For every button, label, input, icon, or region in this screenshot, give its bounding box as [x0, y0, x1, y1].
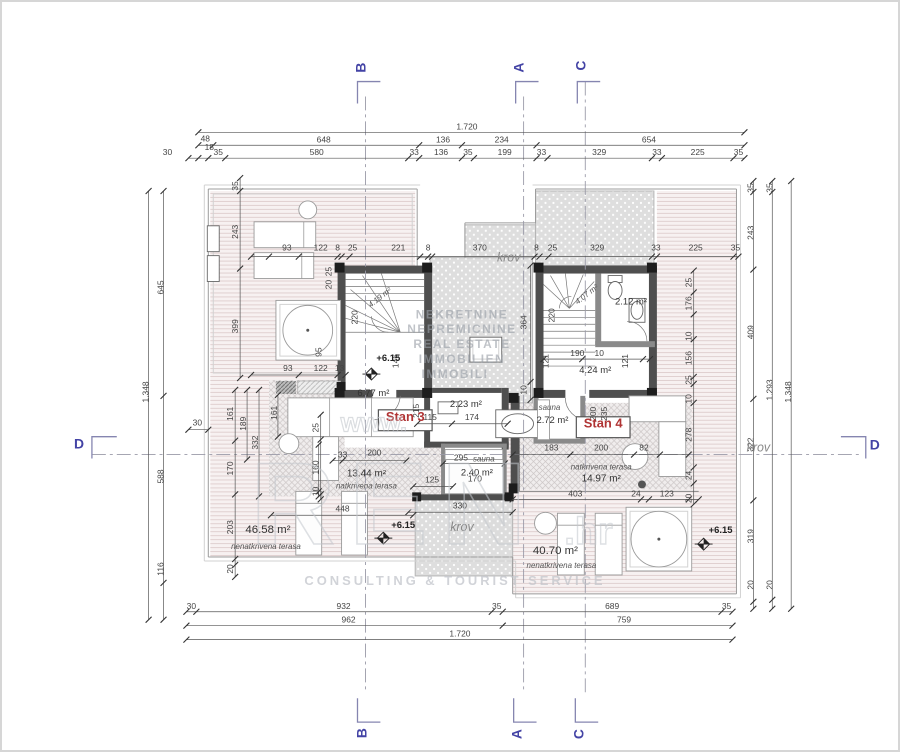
dim-label: 225	[691, 147, 705, 157]
dim-label: 183	[544, 443, 558, 453]
elevation-label: +6.15	[709, 525, 733, 536]
dim-label: 25	[684, 375, 694, 385]
dim-label: 189	[238, 416, 248, 430]
section-letter-A: A	[509, 729, 525, 739]
dim-label: 93	[283, 363, 293, 373]
window	[207, 226, 219, 252]
dim-label: 20	[225, 564, 235, 574]
dim-label: 122	[314, 243, 328, 253]
dim-label: 10	[684, 394, 694, 404]
dim-label: 243	[745, 225, 755, 239]
watermark-logo: REN	[251, 438, 541, 569]
floor-drain	[638, 480, 646, 488]
roof-area-upper	[536, 191, 654, 266]
section-letter-C: C	[570, 729, 586, 739]
dim-label: 278	[684, 427, 694, 441]
dim-label: 220	[546, 308, 556, 322]
dim-label: 243	[230, 224, 240, 238]
section-letter-C: C	[572, 61, 588, 71]
dim-label: 689	[605, 601, 619, 611]
room-area-label: 2.72 m²	[536, 415, 568, 426]
room-area-label: 2.23 m²	[450, 399, 482, 410]
dim-label: 136	[434, 147, 448, 157]
dim-label: 25	[348, 243, 358, 253]
dim-label: 156	[684, 351, 694, 365]
section-letter-D: D	[870, 437, 880, 453]
dim-label: 648	[317, 134, 331, 144]
dim-label: 645	[156, 280, 166, 294]
dim-label: 8	[335, 243, 340, 253]
dim-label: 161	[269, 405, 279, 419]
dim-label: 35	[463, 147, 473, 157]
dim-label: 588	[156, 469, 166, 483]
watermark-line: IMMOBILI	[422, 367, 489, 381]
dim-label: 8	[426, 243, 431, 253]
dim-label: 10	[595, 348, 605, 358]
dim-label: 33	[537, 147, 547, 157]
dim-label: 33	[409, 147, 419, 157]
round-table	[299, 201, 317, 219]
section-letter-D: D	[74, 436, 84, 452]
roof-label: krov	[747, 441, 771, 455]
dim-label: 30	[193, 418, 203, 428]
corner-sofa	[629, 396, 686, 422]
dim-label: 364	[519, 315, 529, 329]
watermark-tagline: CONSULTING & TOURIST SERVICE	[304, 573, 605, 588]
dim-label: 220	[349, 310, 359, 324]
dim-label: 35	[230, 181, 240, 191]
dim-label: 409	[745, 325, 755, 339]
dim-label: 123	[660, 488, 674, 498]
dim-label: 24	[684, 470, 694, 480]
dim-label: 161	[225, 406, 235, 420]
dim-label: 10	[684, 331, 694, 341]
dim-label: 203	[225, 520, 235, 534]
dim-label: 136	[436, 134, 450, 144]
dim-label: 35	[734, 147, 744, 157]
dim-label: 82	[639, 443, 649, 453]
dim-label: 35	[214, 147, 224, 157]
dim-label: 35	[731, 243, 741, 253]
room-area-label: 4.24 m²	[579, 365, 611, 376]
dim-label: 115	[423, 412, 437, 422]
dim-label: 93	[282, 243, 292, 253]
dim-label: 20	[324, 279, 334, 289]
dim-label: 24	[631, 488, 641, 498]
dim-label: 1.720	[456, 121, 477, 131]
room-area-label: 14.97 m²	[582, 473, 622, 484]
window	[207, 256, 219, 282]
floor-plan-canvas: 1.72048186481362346543035580331363519933…	[2, 2, 898, 750]
dim-label: 200	[594, 443, 608, 453]
watermark-line: NEPREMICNINE	[407, 322, 516, 336]
dim-label: 1.293	[764, 379, 774, 400]
dim-label: 580	[310, 147, 324, 157]
dim-label: 20	[764, 580, 774, 590]
watermark-www: www.	[340, 410, 408, 438]
dim-label: 121	[540, 354, 550, 368]
dim-label: 932	[337, 601, 351, 611]
dim-label: 370	[473, 243, 487, 253]
dim-label: 20	[684, 493, 694, 503]
dim-label: 25	[548, 243, 558, 253]
dim-label: 35	[492, 601, 502, 611]
roof-label: krov	[497, 251, 521, 265]
dim-label: 225	[689, 243, 703, 253]
dim-label: 8	[534, 243, 539, 253]
dim-label: 121	[620, 354, 630, 368]
dim-label: 221	[391, 243, 405, 253]
terrace-type-label: sauna	[539, 403, 561, 412]
dim-label: 35	[722, 601, 732, 611]
dim-label: 174	[465, 412, 479, 422]
dim-label: 1.720	[449, 629, 470, 639]
watermark-line: NEKRETNINE	[416, 307, 508, 321]
dim-label: 1.348	[783, 381, 793, 402]
dim-label: 10	[519, 385, 529, 395]
dim-label: 199	[498, 147, 512, 157]
dim-label: 25	[311, 423, 321, 433]
dim-label: 329	[592, 147, 606, 157]
dim-label: 399	[230, 319, 240, 333]
apartment-label: Stan 4	[584, 416, 624, 431]
dim-label: 33	[651, 243, 661, 253]
room-area-label: 6.77 m²	[357, 388, 389, 399]
watermark-tld: .hr	[564, 511, 613, 553]
dim-label: 403	[568, 488, 582, 498]
dim-label: 25	[324, 267, 334, 277]
dim-label: 170	[225, 461, 235, 475]
dim-label: 654	[642, 134, 656, 144]
dim-label: 962	[342, 615, 356, 625]
dim-label: 1.348	[141, 381, 151, 402]
dim-label: 234	[495, 134, 509, 144]
section-letter-B: B	[353, 728, 369, 738]
dim-label: 30	[187, 601, 197, 611]
dim-label: 329	[590, 243, 604, 253]
dim-label: 176	[684, 296, 694, 310]
dim-label: 95	[314, 347, 324, 357]
section-letter-A: A	[511, 63, 527, 73]
dim-label: 190	[570, 348, 584, 358]
terrace-type-label: natkrivena terasa	[571, 463, 632, 472]
dim-label: 13	[335, 363, 345, 373]
dim-label: 35	[745, 183, 755, 193]
watermark-line: REAL ESTATE	[413, 337, 510, 351]
dim-label: 122	[314, 363, 328, 373]
dim-label: 116	[156, 562, 166, 576]
dim-label: 25	[684, 278, 694, 288]
room-area-label: 2.12 m²	[615, 296, 647, 307]
corner-sofa	[659, 422, 686, 477]
dim-label: 35	[764, 183, 774, 193]
watermark-line: IMMOBILIEN	[419, 352, 505, 366]
plan-sheet: 1.72048186481362346543035580331363519933…	[0, 0, 900, 752]
dim-label: 30	[163, 147, 173, 157]
elevation-label: +6.15	[376, 353, 400, 364]
dim-label: 20	[745, 580, 755, 590]
section-letter-B: B	[352, 63, 368, 73]
dim-label: 759	[617, 615, 631, 625]
dim-label: 319	[745, 529, 755, 543]
dim-label: 33	[652, 147, 662, 157]
